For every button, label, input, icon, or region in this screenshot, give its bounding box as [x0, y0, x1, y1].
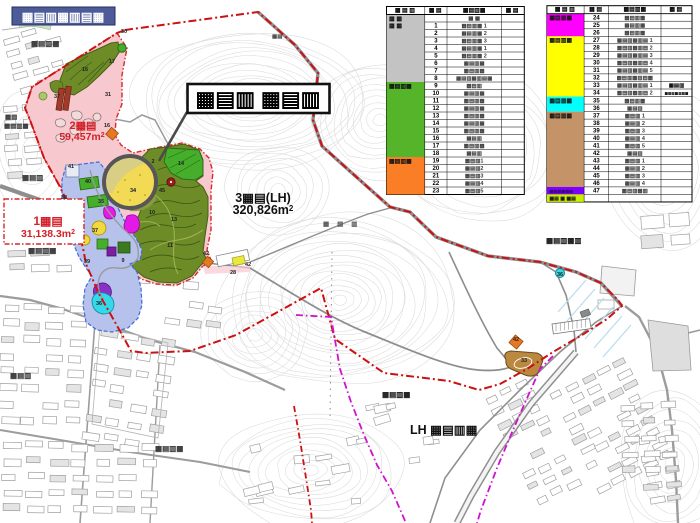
- svg-text:42: 42: [245, 262, 251, 268]
- svg-text:▦▤▥▦: ▦▤▥▦: [624, 31, 646, 37]
- svg-text:22: 22: [433, 181, 440, 187]
- svg-text:▦▤: ▦▤: [272, 34, 283, 40]
- svg-text:▦▤▥▦: ▦▤▥▦: [4, 123, 29, 130]
- svg-text:▦▤▥ 2: ▦▤▥ 2: [625, 166, 645, 172]
- svg-text:59,457m2: 59,457m2: [59, 131, 104, 143]
- svg-text:▦▤▥▦: ▦▤▥▦: [464, 121, 486, 127]
- svg-text:9: 9: [121, 258, 124, 264]
- svg-text:▦▤▥ ▦▤▥: ▦▤▥ ▦▤▥: [196, 88, 321, 111]
- svg-text:▦▤▥ 5: ▦▤▥ 5: [625, 143, 645, 149]
- svg-text:42: 42: [513, 337, 519, 343]
- svg-text:▦▤▥ 4: ▦▤▥ 4: [625, 136, 646, 142]
- svg-text:10: 10: [433, 91, 440, 97]
- svg-text:30: 30: [121, 29, 127, 35]
- svg-text:13: 13: [171, 217, 177, 223]
- svg-text:▦▤▥ 1: ▦▤▥ 1: [625, 113, 645, 119]
- svg-text:11: 11: [167, 243, 173, 249]
- svg-text:37: 37: [92, 228, 98, 234]
- svg-text:▦▤▥▦ 2: ▦▤▥▦ 2: [461, 31, 486, 37]
- svg-text:▦▤▥▦: ▦▤▥▦: [464, 99, 486, 105]
- svg-text:16: 16: [82, 67, 88, 73]
- svg-text:▦▤▥▦▥▤▦: ▦▤▥▦▥▤▦: [456, 76, 493, 82]
- svg-text:▦▤▥: ▦▤▥: [627, 151, 643, 157]
- svg-text:▦▤▥4: ▦▤▥4: [465, 181, 485, 187]
- svg-text:30: 30: [593, 61, 600, 67]
- svg-text:▦▤▥: ▦▤▥: [323, 221, 365, 228]
- svg-text:▦▤▥▦: ▦▤▥▦: [623, 7, 646, 13]
- svg-text:28: 28: [230, 270, 236, 276]
- svg-text:▦▤▥▦▥: ▦▤▥▦▥: [546, 236, 581, 245]
- svg-text:34: 34: [130, 188, 137, 194]
- svg-text:17: 17: [109, 59, 115, 65]
- svg-text:1▦▤: 1▦▤: [33, 214, 62, 228]
- svg-text:38: 38: [593, 121, 600, 127]
- svg-text:33: 33: [593, 83, 600, 89]
- svg-text:▦▤▥ 4: ▦▤▥ 4: [625, 181, 646, 187]
- svg-text:▦▤▥▦: ▦▤▥▦: [389, 84, 412, 90]
- svg-text:▦▤▥: ▦▤▥: [466, 84, 482, 90]
- svg-text:23: 23: [433, 189, 440, 195]
- svg-text:39: 39: [593, 128, 600, 134]
- svg-text:▦▤▥: ▦▤▥: [669, 83, 685, 89]
- svg-text:▦▤▥▦▥▤ 2: ▦▤▥▦▥▤ 2: [617, 91, 653, 97]
- svg-text:▦▤▥▦▥▤ 2: ▦▤▥▦▥▤ 2: [617, 46, 653, 52]
- svg-text:2: 2: [151, 159, 154, 165]
- svg-text:12: 12: [433, 106, 440, 112]
- svg-text:39: 39: [84, 259, 90, 265]
- svg-text:▦▤▥▦▥: ▦▤▥▦▥: [622, 189, 649, 195]
- svg-text:▦▤: ▦▤: [506, 8, 520, 14]
- svg-text:▦▤▥: ▦▤▥: [466, 136, 482, 142]
- svg-text:▦▤▥▦▥▤▦: ▦▤▥▦▥▤▦: [665, 92, 689, 96]
- svg-text:▦ ▦: ▦ ▦: [468, 16, 481, 22]
- svg-text:▦▤▥2: ▦▤▥2: [465, 166, 484, 172]
- svg-text:▦▤▥▦: ▦▤▥▦: [624, 98, 646, 104]
- svg-text:10: 10: [149, 210, 155, 216]
- svg-text:▦▤▥▦: ▦▤▥▦: [464, 114, 486, 120]
- svg-text:35: 35: [593, 98, 600, 104]
- svg-text:▦▤: ▦▤: [5, 114, 18, 121]
- svg-text:▦▤ ▦ ▦▤: ▦▤ ▦ ▦▤: [549, 196, 576, 202]
- svg-text:▦▤▥: ▦▤▥: [10, 371, 31, 380]
- svg-text:▦ ▦: ▦ ▦: [389, 16, 402, 22]
- svg-text:▦▤▥1: ▦▤▥1: [465, 159, 484, 165]
- svg-text:29: 29: [593, 53, 600, 59]
- svg-text:47: 47: [593, 189, 600, 195]
- svg-text:▦▤▥▦▥▤: ▦▤▥▦▥▤: [549, 189, 573, 194]
- svg-text:▦▤▥5: ▦▤▥5: [465, 189, 484, 195]
- svg-text:▦▤▥ 2: ▦▤▥ 2: [625, 121, 645, 127]
- svg-text:36: 36: [96, 301, 102, 307]
- svg-text:33: 33: [521, 358, 527, 364]
- svg-text:320,826m2: 320,826m2: [233, 203, 294, 217]
- svg-text:▦ ▦: ▦ ▦: [389, 23, 402, 29]
- svg-text:▦▤▥ 3: ▦▤▥ 3: [625, 128, 645, 134]
- svg-text:14: 14: [433, 121, 440, 127]
- svg-text:21: 21: [433, 174, 440, 180]
- svg-text:▦▤▥▦▥▤ 5: ▦▤▥▦▥▤ 5: [617, 68, 653, 74]
- svg-text:35: 35: [98, 199, 104, 205]
- svg-text:▦▤▥▦: ▦▤▥▦: [382, 390, 410, 399]
- svg-text:▦▤▥▦: ▦▤▥▦: [464, 129, 486, 135]
- svg-text:25: 25: [593, 23, 600, 29]
- svg-text:36: 36: [557, 272, 563, 278]
- svg-text:▦▤▥▦ 1: ▦▤▥▦ 1: [461, 24, 486, 30]
- svg-text:▦▤▥▦: ▦▤▥▦: [389, 159, 412, 165]
- svg-text:17: 17: [433, 144, 440, 150]
- svg-text:32: 32: [593, 76, 600, 82]
- svg-text:▦▤▥▦: ▦▤▥▦: [549, 38, 572, 44]
- svg-text:▦▤▥: ▦▤▥: [555, 7, 577, 13]
- svg-text:▦▤▥▦▥▤ 4: ▦▤▥▦▥▤ 4: [617, 61, 654, 67]
- svg-text:▦▤▥▦: ▦▤▥▦: [155, 444, 183, 453]
- svg-text:38: 38: [61, 195, 67, 201]
- svg-text:▦▤▥▦ 1: ▦▤▥▦ 1: [461, 46, 486, 52]
- svg-text:27: 27: [593, 38, 600, 44]
- svg-text:▦▤▥▦: ▦▤▥▦: [464, 69, 486, 75]
- svg-text:26: 26: [593, 31, 600, 37]
- svg-text:▦▤▥▦: ▦▤▥▦: [624, 23, 646, 29]
- svg-text:14: 14: [178, 161, 185, 167]
- svg-text:24: 24: [593, 15, 600, 21]
- svg-text:45: 45: [159, 188, 165, 194]
- svg-text:▦▤▥▦: ▦▤▥▦: [464, 91, 486, 97]
- svg-text:▦▤▥▦▥▤ 1: ▦▤▥▦▥▤ 1: [617, 83, 653, 89]
- svg-text:▦▤▥▦: ▦▤▥▦: [624, 15, 646, 21]
- svg-text:▦▤: ▦▤: [589, 7, 603, 13]
- svg-text:▦▤▥▦▥▤▦: ▦▤▥▦▥▤▦: [617, 76, 654, 82]
- svg-text:▦▤▥▦: ▦▤▥▦: [464, 144, 486, 150]
- svg-text:15: 15: [433, 129, 440, 135]
- svg-text:▦▤: ▦▤: [429, 8, 443, 14]
- svg-text:▦▤▥▦: ▦▤▥▦: [549, 98, 572, 104]
- svg-text:43: 43: [593, 159, 600, 165]
- svg-text:18: 18: [433, 151, 440, 157]
- svg-text:▦▤▥▦▥▤▦: ▦▤▥▦▥▤▦: [22, 10, 105, 24]
- svg-text:▦▤▥▦: ▦▤▥▦: [549, 113, 572, 119]
- svg-text:19: 19: [433, 159, 440, 165]
- svg-text:▦▤▥▦▥▤ 3: ▦▤▥▦▥▤ 3: [617, 53, 653, 59]
- svg-text:44: 44: [593, 166, 600, 172]
- svg-text:▦▤▥: ▦▤▥: [627, 106, 643, 112]
- svg-text:▦▤▥: ▦▤▥: [466, 151, 482, 157]
- svg-text:31: 31: [105, 92, 111, 98]
- svg-text:▦▤▥3: ▦▤▥3: [465, 174, 484, 180]
- svg-text:37: 37: [54, 94, 60, 100]
- svg-text:▦▤▥▦▥▤ 1: ▦▤▥▦▥▤ 1: [617, 38, 653, 44]
- svg-text:42: 42: [593, 151, 600, 157]
- svg-text:41: 41: [68, 164, 74, 170]
- svg-text:▦▤▥▦: ▦▤▥▦: [549, 16, 572, 22]
- svg-text:▦▤▥▦: ▦▤▥▦: [464, 106, 486, 112]
- svg-text:46: 46: [593, 181, 600, 187]
- svg-text:LH ▦▤▥▦: LH ▦▤▥▦: [410, 423, 478, 437]
- svg-text:▦▤▥▦: ▦▤▥▦: [463, 8, 486, 14]
- svg-text:▦▤▥: ▦▤▥: [22, 173, 43, 182]
- svg-text:▦▤▥▦ 3: ▦▤▥▦ 3: [461, 39, 486, 45]
- svg-text:40: 40: [593, 136, 600, 142]
- svg-text:▦▤▥▦: ▦▤▥▦: [464, 61, 486, 67]
- svg-text:▦▤▥: ▦▤▥: [395, 8, 417, 14]
- svg-text:34: 34: [593, 91, 600, 97]
- svg-text:42: 42: [203, 251, 209, 257]
- svg-text:▦▤▥ 1: ▦▤▥ 1: [625, 159, 645, 165]
- svg-text:▦▤: ▦▤: [669, 7, 683, 13]
- svg-text:28: 28: [593, 46, 600, 52]
- svg-text:45: 45: [593, 174, 600, 180]
- svg-text:11: 11: [433, 99, 440, 105]
- svg-text:13: 13: [433, 114, 440, 120]
- svg-text:▦▤▥▦ 2: ▦▤▥▦ 2: [461, 54, 486, 60]
- svg-text:31: 31: [593, 68, 600, 74]
- svg-text:31,138.3m2: 31,138.3m2: [21, 228, 75, 240]
- svg-text:16: 16: [433, 136, 440, 142]
- svg-text:▦▤▥▦: ▦▤▥▦: [31, 39, 59, 48]
- svg-text:▦▤▥▦: ▦▤▥▦: [28, 246, 56, 255]
- svg-text:36: 36: [593, 106, 600, 112]
- svg-text:16: 16: [104, 123, 110, 129]
- svg-text:41: 41: [593, 143, 600, 149]
- svg-text:20: 20: [433, 166, 440, 172]
- svg-text:40: 40: [85, 179, 91, 185]
- svg-text:▦▤▥ 3: ▦▤▥ 3: [625, 174, 645, 180]
- svg-text:37: 37: [593, 113, 600, 119]
